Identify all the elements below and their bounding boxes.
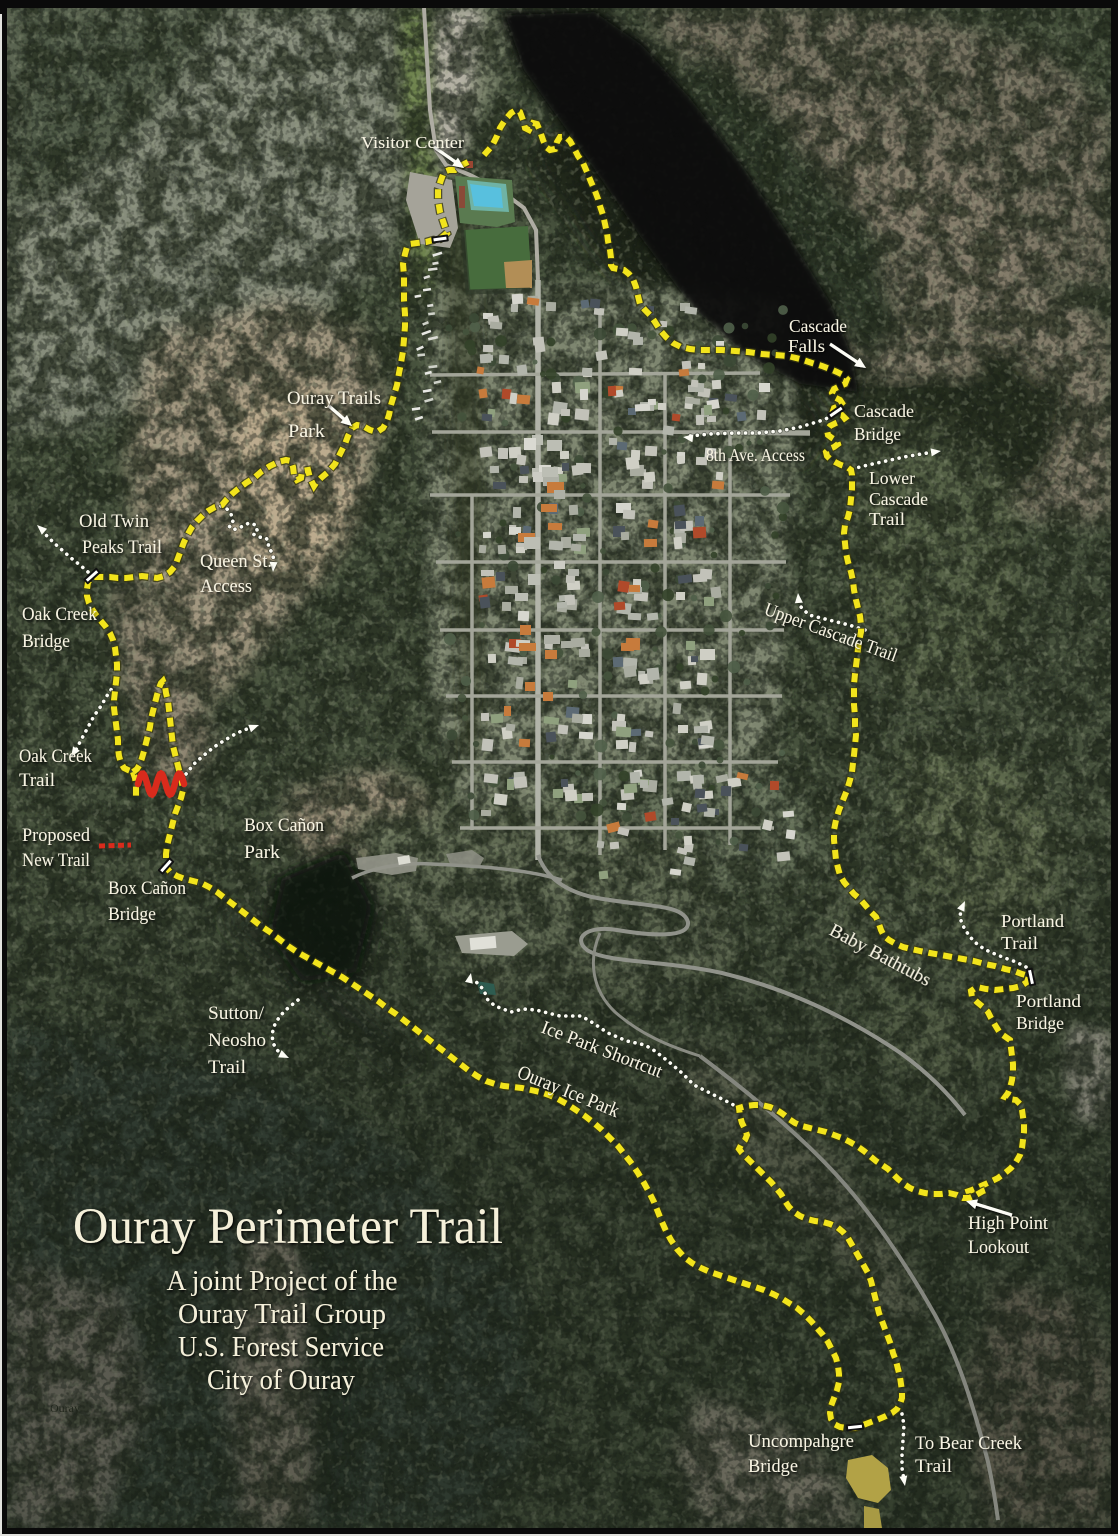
- svg-text:Ouray Perimeter Trail: Ouray Perimeter Trail: [73, 1199, 503, 1255]
- svg-text:Ouray: Ouray: [50, 1401, 80, 1415]
- svg-text:A joint Project of the: A joint Project of the: [167, 1265, 398, 1297]
- svg-text:Trail: Trail: [1001, 933, 1038, 953]
- svg-text:Cascade: Cascade: [789, 316, 847, 336]
- svg-text:Bridge: Bridge: [22, 631, 70, 652]
- svg-text:Bridge: Bridge: [854, 424, 901, 444]
- svg-text:Uncompahgre: Uncompahgre: [748, 1431, 854, 1452]
- svg-text:Access: Access: [200, 576, 252, 597]
- svg-text:Park: Park: [244, 842, 281, 863]
- svg-text:U.S. Forest Service: U.S. Forest Service: [178, 1331, 384, 1363]
- svg-text:Bridge: Bridge: [1016, 1013, 1064, 1033]
- svg-text:Lookout: Lookout: [968, 1237, 1030, 1258]
- svg-text:Bridge: Bridge: [108, 904, 156, 925]
- svg-text:Trail: Trail: [19, 770, 55, 791]
- svg-text:Park: Park: [288, 421, 326, 442]
- svg-text:Trail: Trail: [915, 1456, 952, 1477]
- svg-text:Ouray Trail Group: Ouray Trail Group: [178, 1298, 386, 1330]
- svg-text:To Bear Creek: To Bear Creek: [915, 1433, 1022, 1454]
- svg-text:Visitor Center: Visitor Center: [361, 133, 464, 152]
- svg-text:8th Ave. Access: 8th Ave. Access: [706, 445, 805, 465]
- svg-text:Proposed: Proposed: [22, 825, 90, 846]
- svg-text:Trail: Trail: [208, 1057, 246, 1078]
- svg-text:Neosho: Neosho: [208, 1030, 266, 1051]
- svg-text:Lower: Lower: [869, 468, 915, 488]
- svg-text:City of Ouray: City of Ouray: [207, 1364, 355, 1396]
- svg-text:Trail: Trail: [869, 509, 905, 529]
- svg-text:Portland: Portland: [1001, 911, 1064, 931]
- svg-text:Cascade: Cascade: [854, 401, 914, 421]
- svg-text:High Point: High Point: [968, 1213, 1049, 1234]
- svg-text:Peaks Trail: Peaks Trail: [82, 537, 162, 558]
- svg-text:Cascade: Cascade: [869, 489, 928, 509]
- svg-text:Oak Creek: Oak Creek: [19, 746, 92, 767]
- svg-text:Queen St.: Queen St.: [200, 551, 272, 572]
- svg-text:Falls: Falls: [788, 336, 825, 356]
- svg-text:Ouray Trails: Ouray Trails: [287, 388, 381, 409]
- svg-text:Box Cañon: Box Cañon: [244, 815, 324, 836]
- svg-text:Oak Creek: Oak Creek: [22, 604, 97, 625]
- svg-text:Sutton/: Sutton/: [208, 1003, 265, 1024]
- svg-text:Old Twin: Old Twin: [79, 511, 149, 532]
- svg-text:Bridge: Bridge: [748, 1456, 798, 1477]
- svg-text:Portland: Portland: [1016, 991, 1081, 1011]
- svg-text:New Trail: New Trail: [22, 850, 90, 871]
- svg-text:Box Cañon: Box Cañon: [108, 878, 186, 899]
